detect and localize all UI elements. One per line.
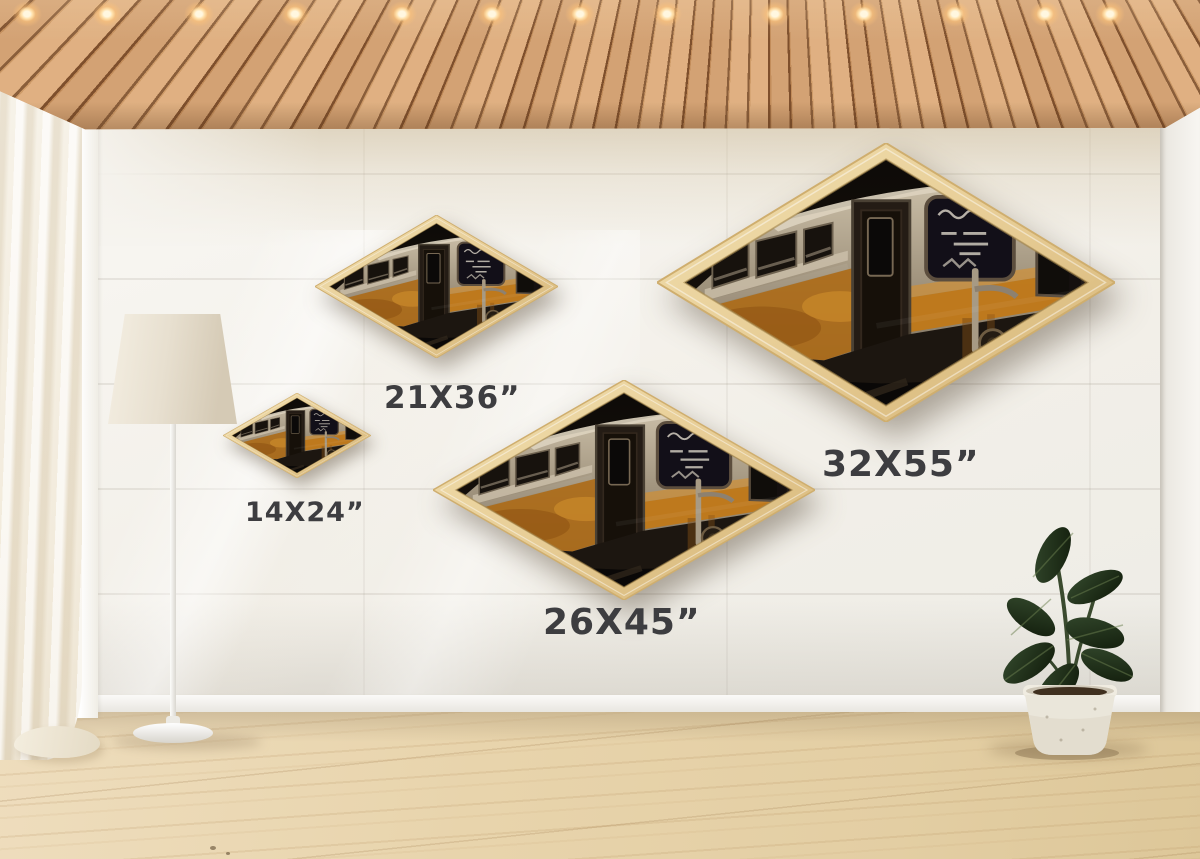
recessed-light-icon xyxy=(477,1,507,27)
sheer-curtain xyxy=(0,78,82,760)
size-label-26x45: 26X45” xyxy=(543,602,701,643)
canvas-frame-32x55 xyxy=(657,143,1115,422)
recessed-light-icon xyxy=(92,1,122,27)
train-artwork xyxy=(223,393,371,478)
size-label-14x24: 14X24” xyxy=(245,497,365,528)
recessed-light-icon xyxy=(565,1,595,27)
recessed-light-icon xyxy=(760,1,790,27)
size-label-21x36: 21X36” xyxy=(384,380,521,416)
canvas-frame-14x24 xyxy=(223,393,371,478)
recessed-light-icon xyxy=(652,1,682,27)
recessed-light-icon xyxy=(280,1,310,27)
recessed-light-icon xyxy=(387,1,417,27)
recessed-light-icon xyxy=(940,1,970,27)
rubber-plant-icon xyxy=(995,525,1145,760)
recessed-light-icon xyxy=(12,1,42,27)
floor-speck xyxy=(210,846,216,850)
room-mockup-scene: 14X24” 21X36” 26X45” 32X55” xyxy=(0,0,1200,859)
recessed-light-icon xyxy=(1095,1,1125,27)
side-wall xyxy=(1160,95,1200,735)
floor-lamp-shade xyxy=(108,314,237,424)
floor-speck xyxy=(226,852,230,855)
train-artwork xyxy=(657,143,1115,422)
train-artwork xyxy=(315,215,558,358)
floor-lamp-base xyxy=(133,723,213,743)
recessed-light-icon xyxy=(184,1,214,27)
curtain-hem xyxy=(14,726,100,758)
canvas-frame-21x36 xyxy=(315,215,558,358)
recessed-light-icon xyxy=(849,1,879,27)
potted-rubber-plant xyxy=(995,525,1145,760)
floor-lamp-pole xyxy=(170,422,176,728)
recessed-light-icon xyxy=(1030,1,1060,27)
size-label-32x55: 32X55” xyxy=(822,444,980,485)
wood-slat-ceiling xyxy=(0,0,1200,136)
